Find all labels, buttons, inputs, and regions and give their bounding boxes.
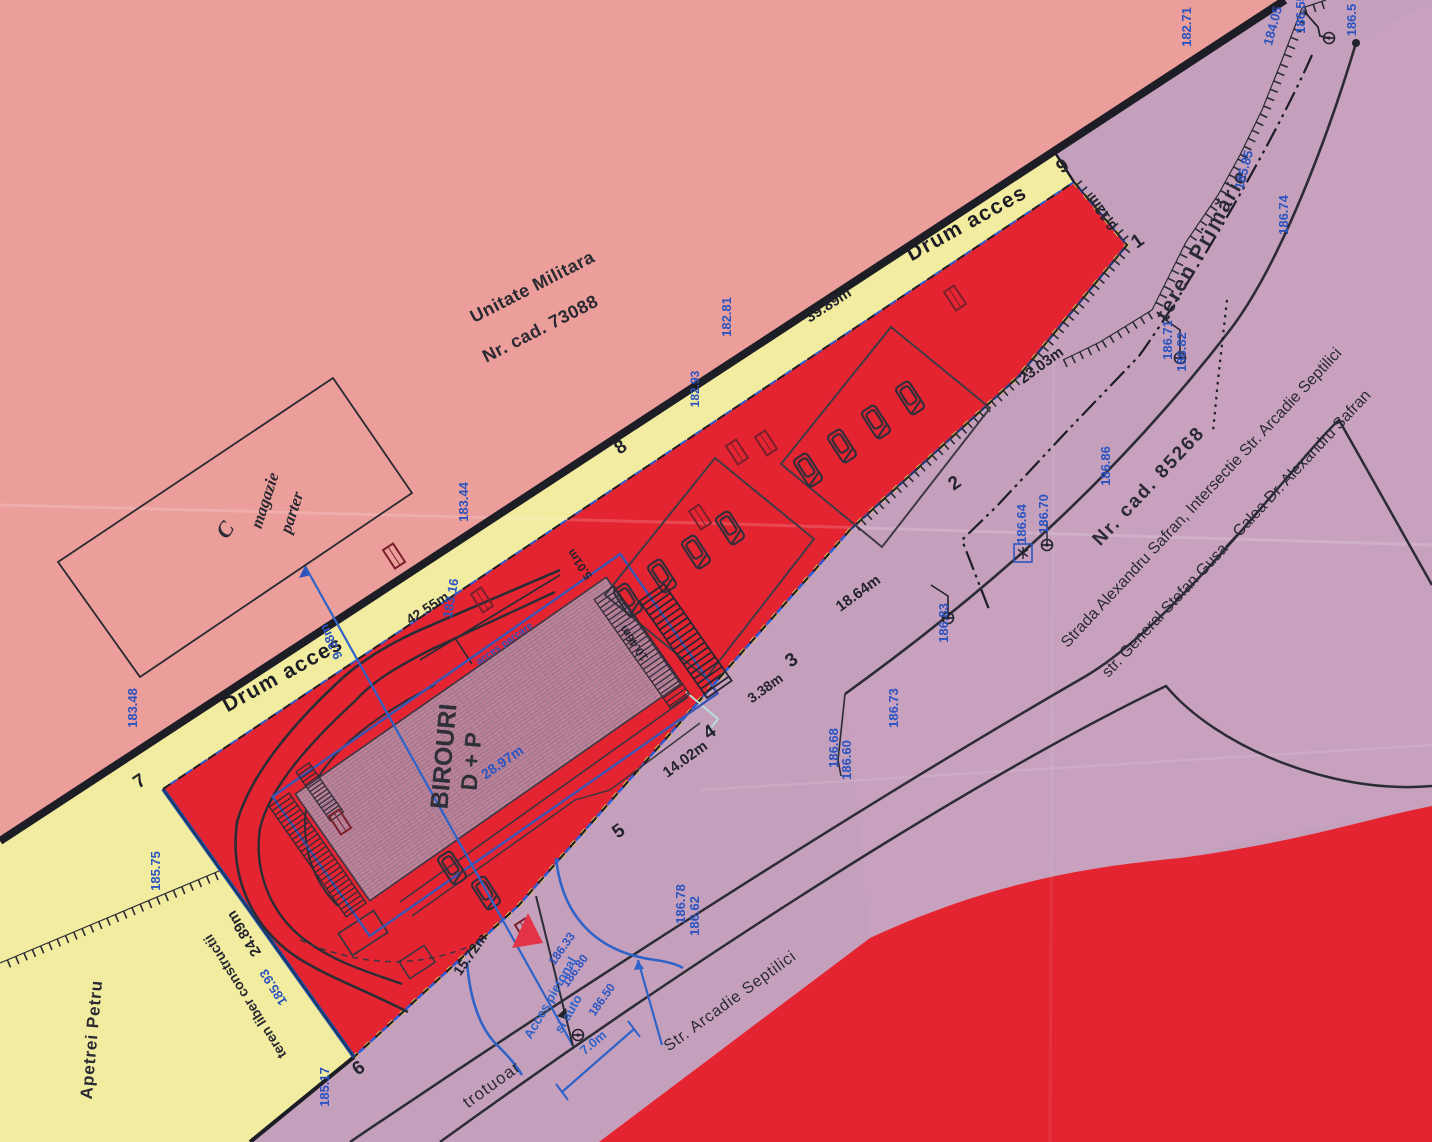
svg-text:186.62: 186.62	[687, 896, 702, 936]
svg-text:183.44: 183.44	[456, 481, 471, 522]
svg-text:186.73: 186.73	[886, 688, 901, 728]
svg-text:185.75: 185.75	[148, 851, 163, 891]
svg-text:185.17: 185.17	[317, 1067, 332, 1107]
svg-text:186.71: 186.71	[1160, 320, 1175, 360]
svg-text:183.48: 183.48	[125, 688, 140, 728]
svg-text:186.82: 186.82	[1174, 332, 1189, 372]
svg-text:182.81: 182.81	[719, 297, 734, 337]
svg-text:186.5: 186.5	[1344, 4, 1359, 37]
svg-text:186.70: 186.70	[1036, 494, 1051, 534]
svg-text:182.93: 182.93	[688, 370, 702, 407]
svg-text:186.86: 186.86	[1098, 446, 1113, 486]
svg-text:186.55: 186.55	[1293, 0, 1308, 34]
svg-text:182.71: 182.71	[1179, 7, 1194, 47]
svg-text:186.64: 186.64	[1014, 503, 1029, 544]
svg-text:186.83: 186.83	[936, 603, 951, 643]
svg-text:D + P: D + P	[456, 731, 487, 791]
svg-text:186.74: 186.74	[1276, 194, 1291, 235]
svg-text:186.78: 186.78	[673, 884, 688, 924]
svg-text:186.60: 186.60	[839, 740, 854, 780]
